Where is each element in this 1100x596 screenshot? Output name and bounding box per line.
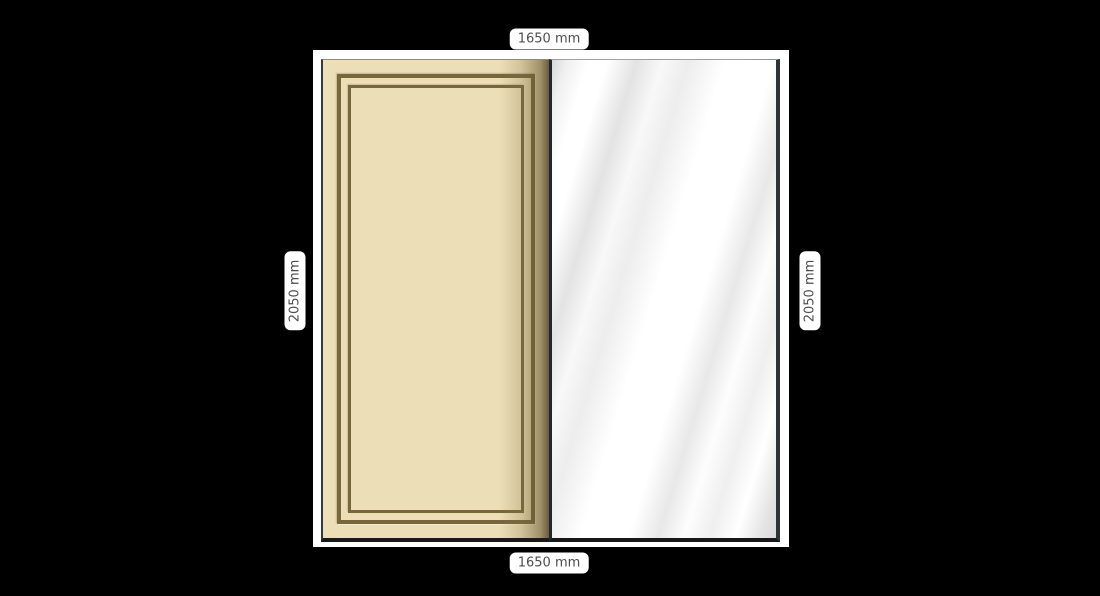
width-dimension-label-top: 1650 mm: [510, 29, 589, 50]
panel-door-edge-shadow: [323, 60, 549, 538]
panel-door[interactable]: [321, 59, 549, 542]
height-dimension-label-right: 2050 mm: [800, 252, 821, 331]
height-dimension-label-left: 2050 mm: [285, 252, 306, 331]
mirror-door[interactable]: [549, 59, 780, 542]
width-dimension-label-bottom: 1650 mm: [510, 553, 589, 574]
wardrobe-canvas: 1650 mm 1650 mm 2050 mm 2050 mm: [0, 0, 1100, 596]
wardrobe-frame: [313, 50, 789, 547]
panel-door-inner-molding: [348, 85, 524, 513]
panel-door-outer-molding: [337, 74, 535, 524]
